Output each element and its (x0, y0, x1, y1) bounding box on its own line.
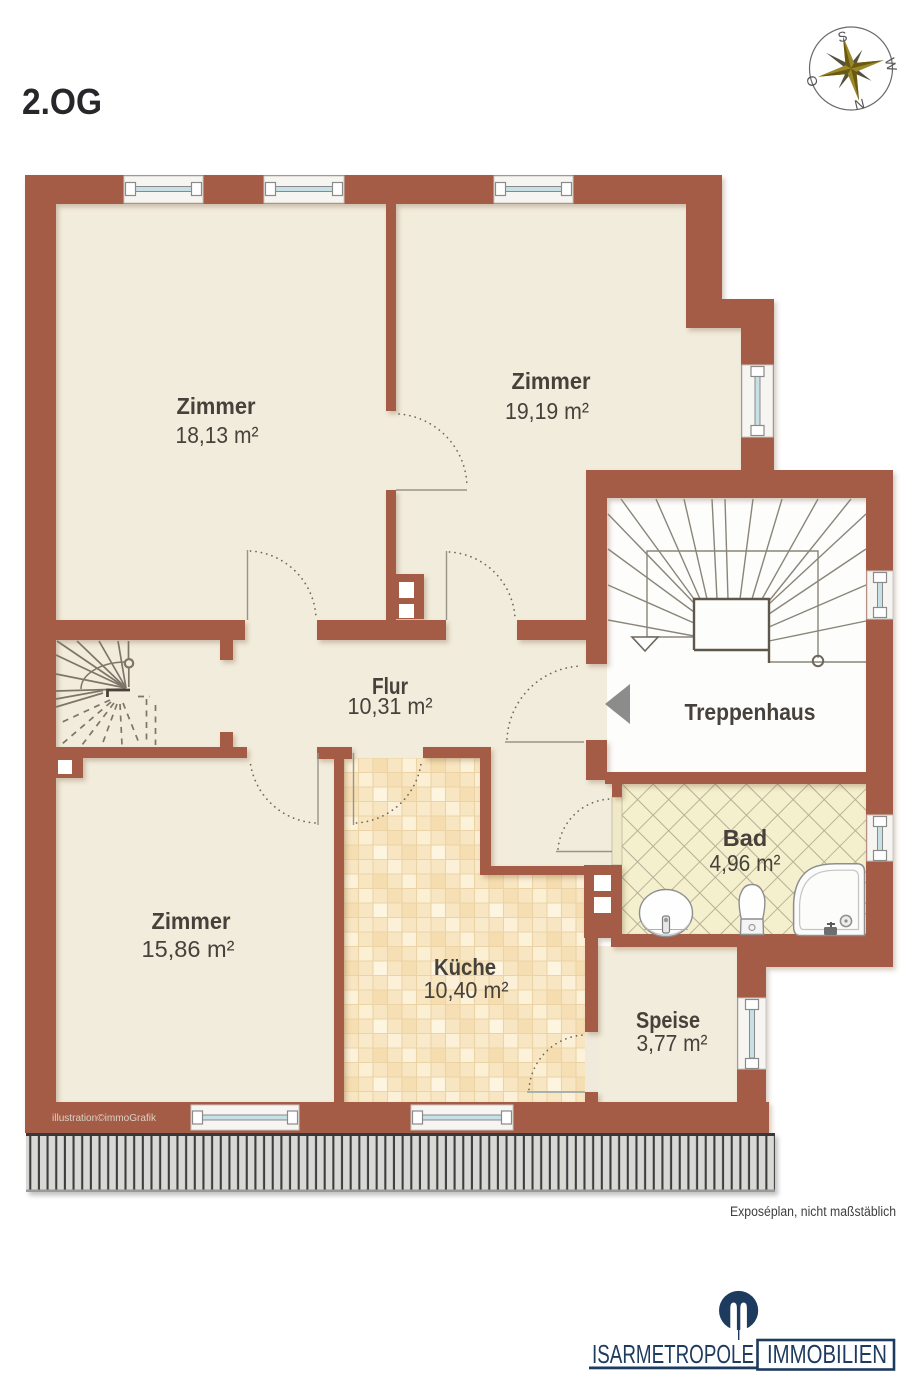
svg-text:2.OG: 2.OG (22, 81, 102, 122)
svg-text:19,19 m²: 19,19 m² (505, 398, 589, 424)
svg-text:Treppenhaus: Treppenhaus (685, 699, 816, 725)
svg-text:10,31 m²: 10,31 m² (348, 693, 433, 719)
svg-text:ISARMETROPOLE: ISARMETROPOLE (592, 1339, 754, 1369)
svg-text:18,13 m²: 18,13 m² (176, 422, 259, 448)
svg-text:Zimmer: Zimmer (152, 908, 231, 934)
svg-text:Zimmer: Zimmer (512, 368, 591, 394)
svg-text:3,77 m²: 3,77 m² (637, 1030, 708, 1056)
svg-text:IMMOBILIEN: IMMOBILIEN (767, 1339, 887, 1369)
svg-text:illustration©immoGrafik: illustration©immoGrafik (52, 1112, 157, 1124)
svg-text:Bad: Bad (723, 825, 767, 851)
svg-text:4,96 m²: 4,96 m² (710, 850, 781, 876)
svg-text:15,86 m²: 15,86 m² (142, 936, 235, 962)
svg-text:Exposéplan, nicht maßstäblich: Exposéplan, nicht maßstäblich (730, 1204, 896, 1219)
svg-text:10,40 m²: 10,40 m² (424, 977, 509, 1003)
svg-text:Zimmer: Zimmer (177, 393, 256, 419)
